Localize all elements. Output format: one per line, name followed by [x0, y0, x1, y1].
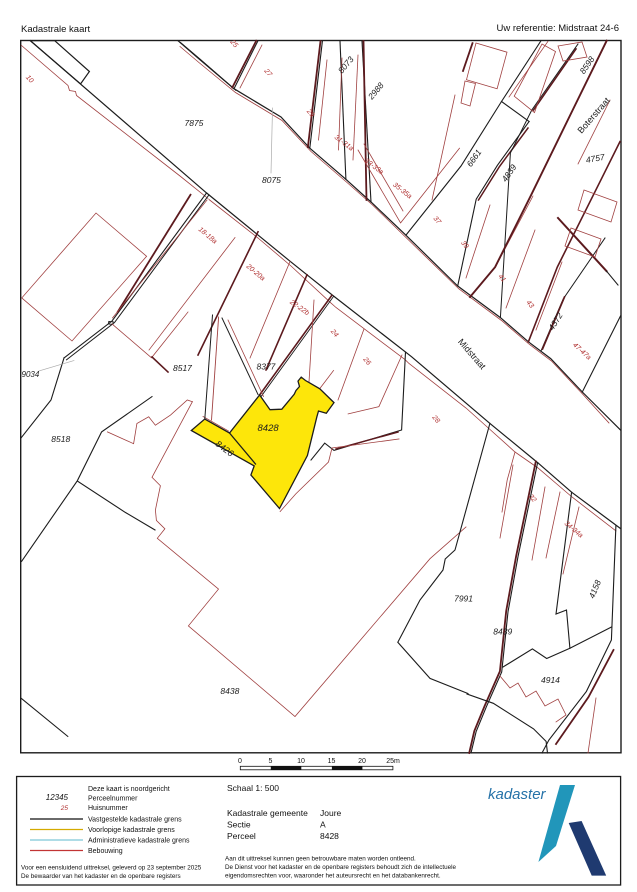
svg-text:25: 25: [60, 805, 69, 812]
svg-text:5: 5: [269, 758, 273, 765]
svg-text:kadaster: kadaster: [488, 786, 547, 803]
svg-text:8428: 8428: [258, 423, 280, 434]
svg-text:12345: 12345: [46, 793, 69, 802]
svg-text:20: 20: [358, 758, 366, 765]
svg-text:Kadastrale kaart: Kadastrale kaart: [21, 24, 91, 35]
svg-text:4914: 4914: [541, 675, 560, 685]
svg-text:Huisnummer: Huisnummer: [88, 805, 128, 812]
svg-text:Kadastrale gemeente: Kadastrale gemeente: [227, 808, 308, 818]
svg-text:10: 10: [297, 758, 305, 765]
svg-text:8439: 8439: [493, 627, 512, 637]
svg-text:8518: 8518: [51, 434, 70, 444]
svg-text:Bebouwing: Bebouwing: [88, 848, 123, 855]
svg-text:25m: 25m: [386, 758, 400, 765]
svg-text:Perceel: Perceel: [227, 831, 256, 841]
svg-text:7875: 7875: [185, 118, 204, 128]
svg-text:0: 0: [238, 758, 242, 765]
svg-text:A: A: [320, 820, 326, 830]
svg-text:Joure: Joure: [320, 808, 342, 818]
svg-text:9034: 9034: [22, 370, 40, 379]
svg-text:8428: 8428: [320, 831, 339, 841]
svg-text:Voorlopige kadastrale grens: Voorlopige kadastrale grens: [88, 827, 175, 834]
svg-text:8438: 8438: [220, 686, 239, 696]
svg-text:8075: 8075: [262, 175, 281, 185]
svg-text:Voor een eensluidend uittrekse: Voor een eensluidend uittreksel, gelever…: [21, 865, 202, 872]
svg-text:Aan dit uittreksel kunnen geen: Aan dit uittreksel kunnen geen betrouwba…: [225, 856, 416, 863]
svg-text:De bewaarder van het kadaster: De bewaarder van het kadaster en de open…: [21, 873, 181, 880]
svg-text:Perceelnummer: Perceelnummer: [88, 796, 138, 803]
svg-text:8377: 8377: [257, 362, 276, 372]
svg-text:eigendomsrechten voor, waarond: eigendomsrechten voor, waaronder het aut…: [225, 873, 441, 880]
svg-text:8517: 8517: [173, 363, 192, 373]
svg-text:7991: 7991: [454, 593, 473, 603]
svg-text:Deze kaart is noordgericht: Deze kaart is noordgericht: [88, 786, 170, 793]
svg-text:De Dienst voor het kadaster en: De Dienst voor het kadaster en de openba…: [225, 864, 457, 871]
svg-text:Sectie: Sectie: [227, 820, 251, 830]
svg-text:Uw referentie: Midstraat 24-6: Uw referentie: Midstraat 24-6: [497, 23, 620, 34]
svg-text:15: 15: [328, 758, 336, 765]
svg-text:Vastgestelde kadastrale grens: Vastgestelde kadastrale grens: [88, 817, 182, 824]
svg-text:Administratieve kadastrale gre: Administratieve kadastrale grens: [88, 838, 190, 845]
svg-text:Schaal 1: 500: Schaal 1: 500: [227, 783, 279, 793]
